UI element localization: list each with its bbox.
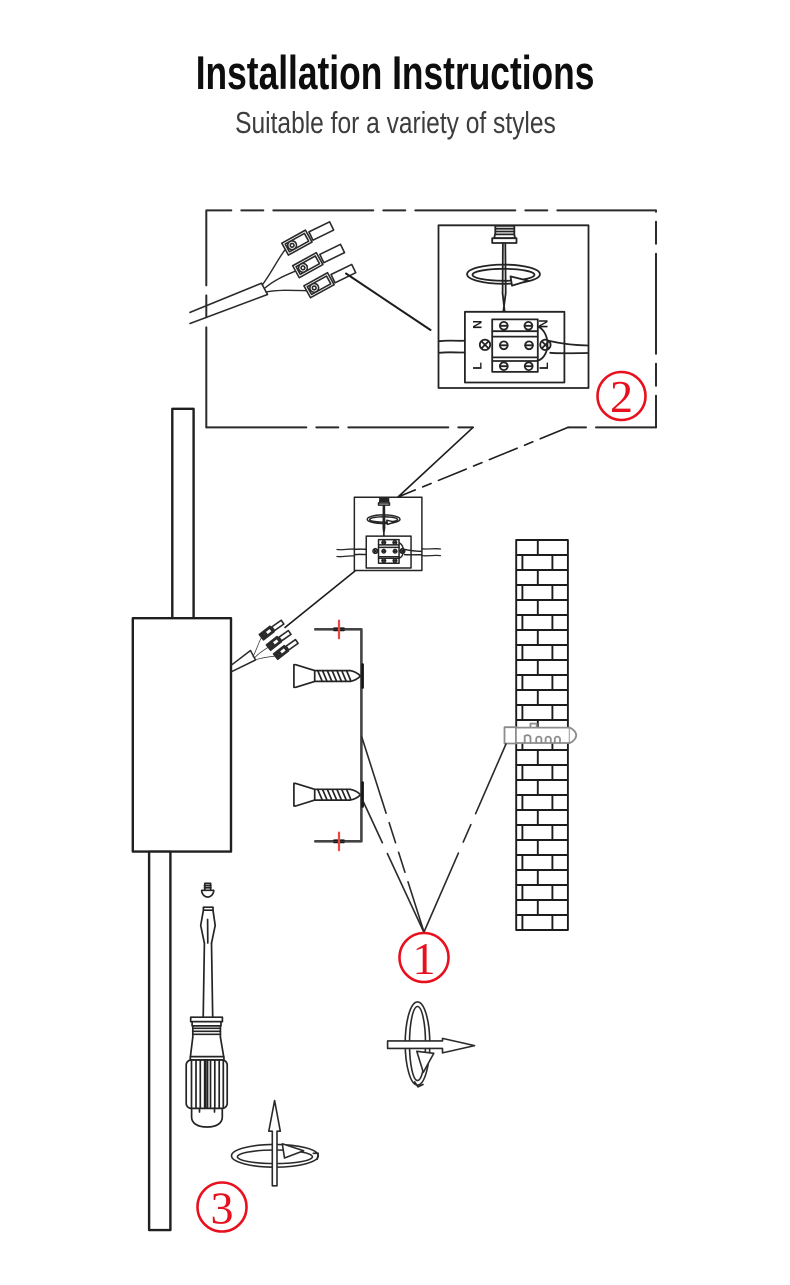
svg-text:L: L (537, 362, 551, 369)
svg-text:L: L (471, 362, 485, 369)
svg-text:2: 2 (610, 371, 633, 422)
svg-text:1: 1 (413, 933, 436, 984)
svg-text:3: 3 (211, 1183, 234, 1234)
svg-text:N: N (471, 320, 485, 329)
svg-text:N: N (537, 319, 551, 328)
